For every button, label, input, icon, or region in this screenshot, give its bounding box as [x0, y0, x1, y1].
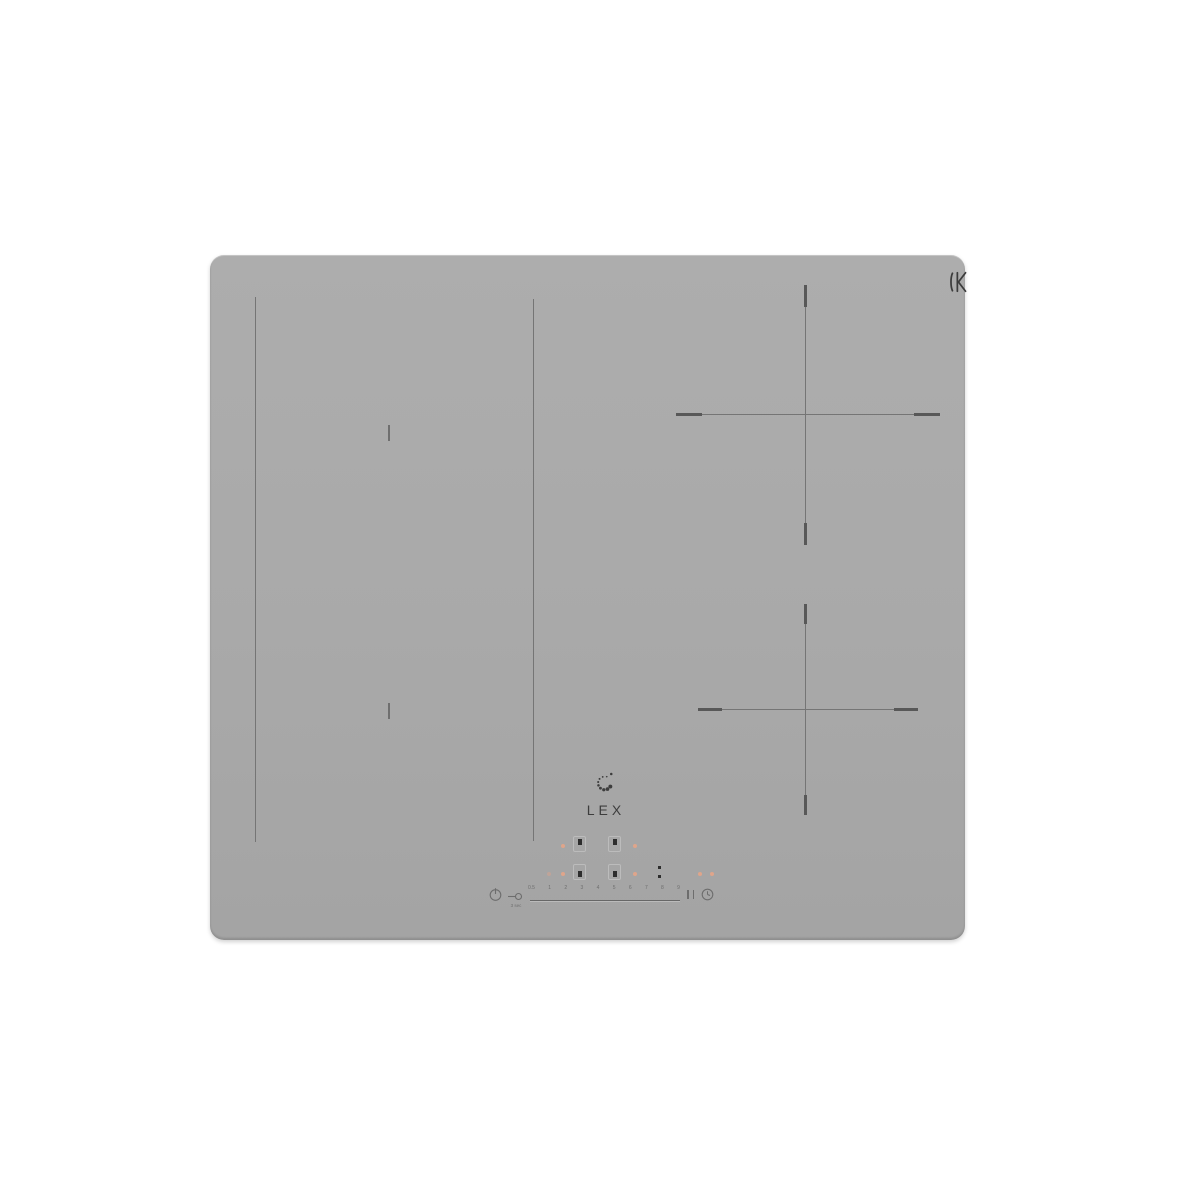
brand-logo: LEX — [576, 769, 632, 818]
timer-colon-display — [658, 866, 661, 878]
slider-label: 2 — [564, 886, 567, 891]
heat-indicator-dot — [633, 872, 637, 876]
slider-label: 8 — [661, 886, 664, 891]
cooktop-glass-panel: LEX — [210, 255, 965, 940]
slider-label: 3 — [581, 886, 584, 891]
heat-indicator-dot — [547, 872, 551, 876]
zone-cross-cap — [804, 795, 807, 815]
zone-cross-horizontal-line — [676, 414, 940, 415]
product-photo-canvas: LEX — [0, 0, 1200, 1200]
glass-brand-mark-icon — [948, 270, 972, 296]
zone-power-display — [573, 836, 586, 852]
flex-zone-right-line — [533, 299, 534, 841]
zone-power-display — [573, 864, 586, 880]
flex-zone-left-line — [255, 297, 256, 842]
zone-cross-vertical-line — [805, 285, 806, 545]
flex-zone-lower-tick — [388, 703, 390, 719]
slider-label: 5 — [613, 886, 616, 891]
logo-text: LEX — [576, 802, 632, 818]
heat-indicator-dot — [698, 872, 702, 876]
pause-icon — [687, 890, 694, 899]
zone-cross-cap — [804, 523, 807, 545]
heat-indicator-dot — [633, 844, 637, 848]
flex-zone-upper-tick — [388, 425, 390, 441]
zone-cross-horizontal-line — [698, 709, 918, 710]
power-icon — [488, 887, 503, 907]
timer-icon — [700, 887, 715, 907]
power-slider-track — [530, 900, 680, 901]
zone-cross-cap — [914, 413, 940, 416]
slider-label: 7 — [645, 886, 648, 891]
zone-cross-cap — [894, 708, 918, 711]
heat-indicator-dot — [710, 872, 714, 876]
slider-label: 1 — [548, 886, 551, 891]
zone-cross-cap — [676, 413, 702, 416]
slider-label: 4 — [597, 886, 600, 891]
zone-cross-cap — [804, 604, 807, 624]
slider-label: 0.5 — [528, 886, 535, 891]
slider-label: 6 — [629, 886, 632, 891]
zone-cross-cap — [698, 708, 722, 711]
heat-indicator-dot — [561, 872, 565, 876]
logo-dotted-swirl-icon — [591, 783, 618, 800]
zone-power-display — [608, 864, 621, 880]
heat-indicator-dot — [561, 844, 565, 848]
power-slider-scale: 0.5 1 2 3 4 5 6 7 8 9 — [528, 886, 680, 891]
lock-caption: 3 sec — [505, 903, 527, 908]
zone-cross-cap — [804, 285, 807, 307]
zone-power-display — [608, 836, 621, 852]
slider-label: 9 — [677, 886, 680, 891]
